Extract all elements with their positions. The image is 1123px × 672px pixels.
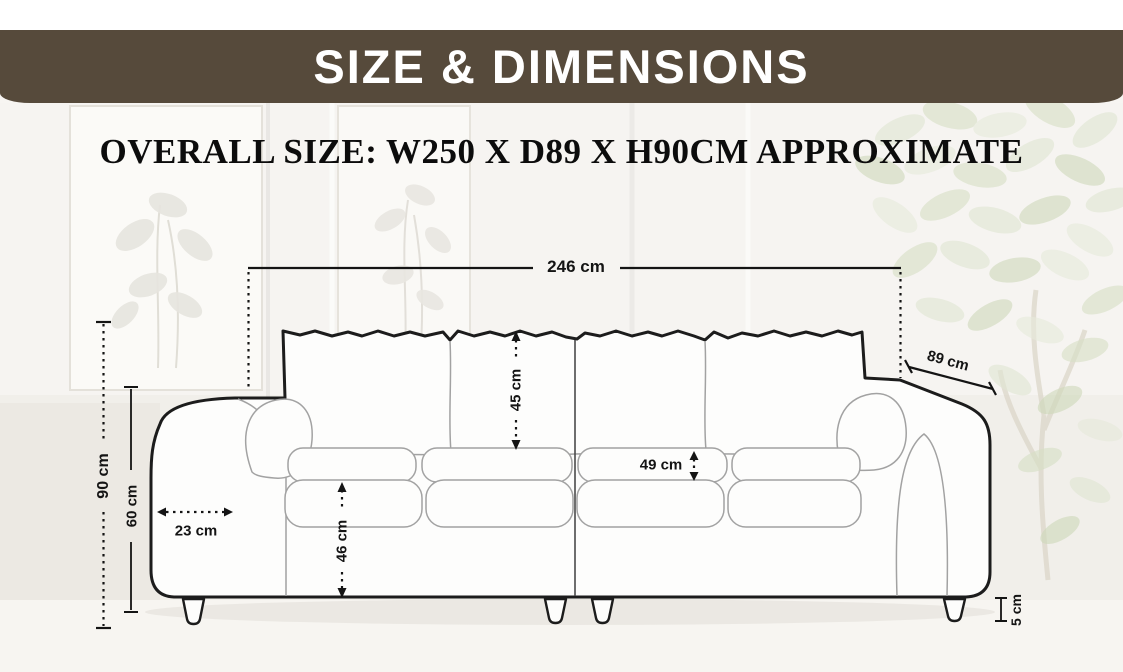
seat-depth-label: 49 cm	[640, 457, 683, 474]
back-cushion-label: 45 cm	[508, 369, 525, 412]
overall-size-text: OVERALL SIZE: W250 X D89 X H90CM APPROXI…	[0, 132, 1123, 172]
overall-width-label: 246 cm	[547, 257, 605, 277]
arm-height-label: 60 cm	[124, 485, 141, 528]
leg-height-label: 5 cm	[1008, 594, 1024, 626]
seat-height-label: 46 cm	[334, 520, 351, 563]
size-dimensions-infographic: SIZE & DIMENSIONS OVERALL SIZE: W250 X D…	[0, 0, 1123, 672]
overall-height-label: 90 cm	[95, 453, 113, 498]
arm-width-label: 23 cm	[175, 523, 218, 540]
header-band: SIZE & DIMENSIONS	[0, 30, 1123, 103]
page-title: SIZE & DIMENSIONS	[313, 39, 809, 94]
